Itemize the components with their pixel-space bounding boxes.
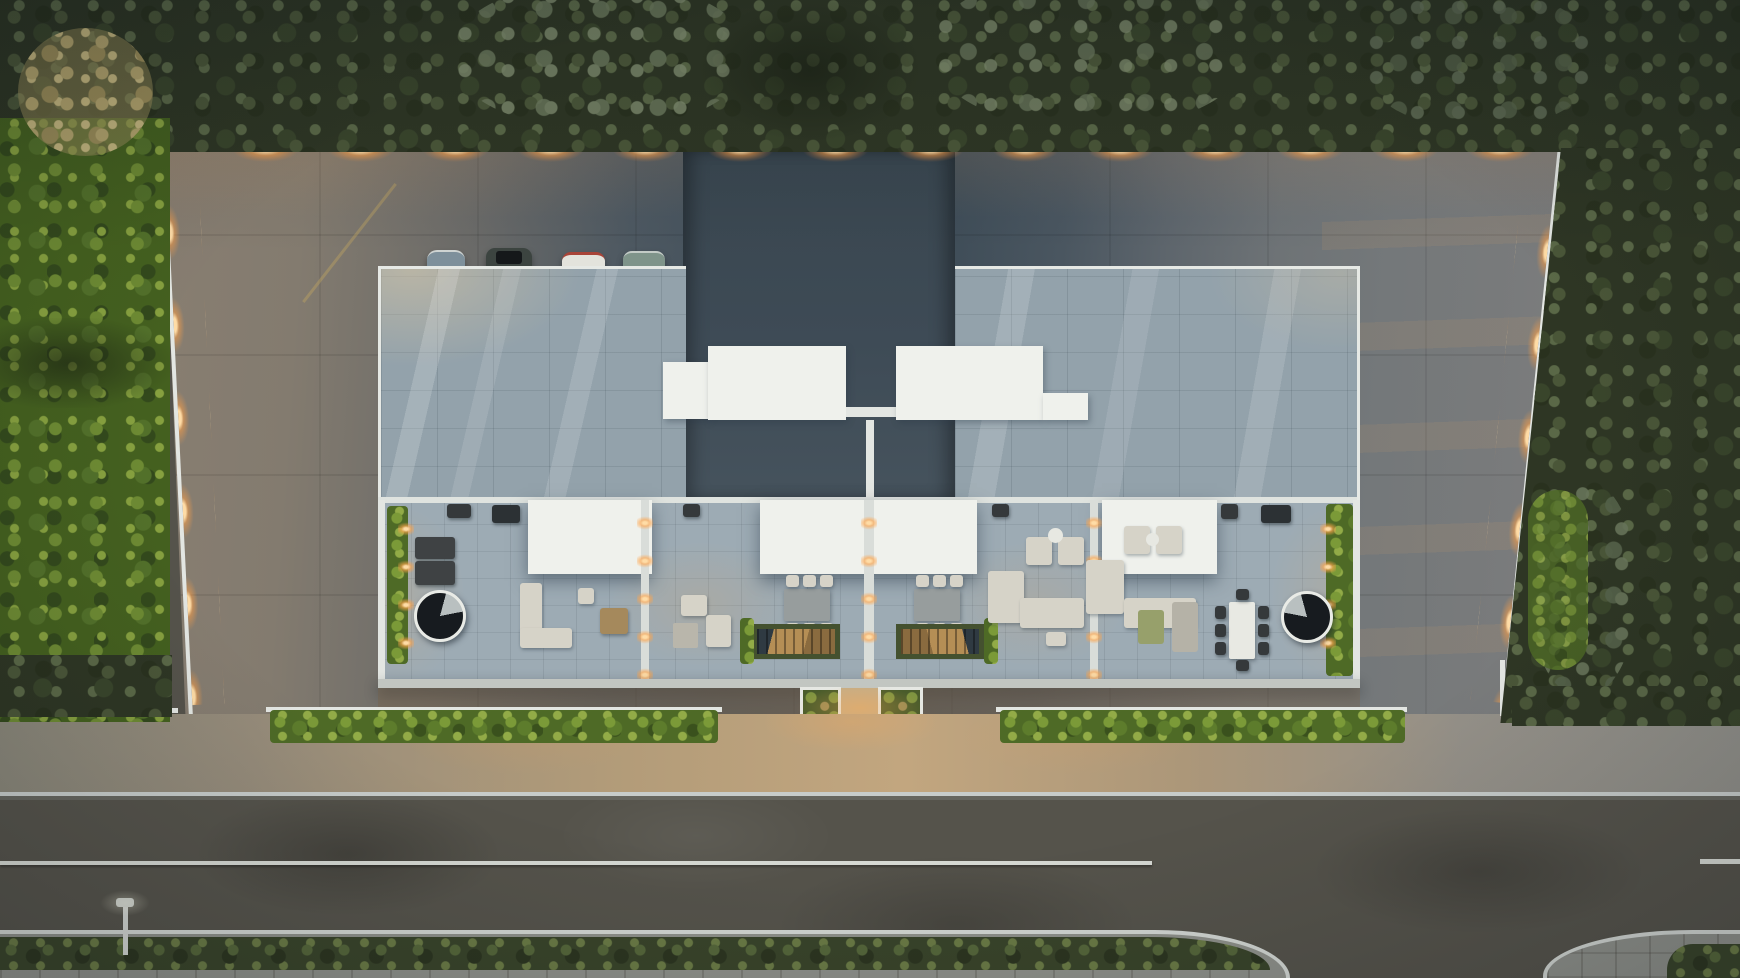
sidewalk [0, 714, 1740, 792]
sofa-unit4-vert [1086, 560, 1124, 614]
aerial-dusk-render [0, 0, 1740, 978]
moss-coffee-table-unit4 [1138, 610, 1164, 644]
dark-gap-left [0, 318, 170, 408]
roof-volume-connector [846, 407, 896, 417]
roof-plane-left [378, 266, 686, 505]
party-wall-center-lights [861, 504, 877, 684]
island-green-patch [1667, 944, 1740, 978]
recessed-core-yard [683, 148, 955, 502]
tree-band-top [0, 0, 1740, 152]
street-lamp-glow [100, 890, 150, 916]
pergola-canopy-unit1 [528, 500, 652, 574]
terrace-wall-left [378, 500, 385, 687]
round-table-unit3 [1048, 528, 1063, 543]
sofa-unit3-vert [988, 571, 1024, 623]
tan-tree-cluster [18, 28, 153, 156]
sofa-unit1-horiz [520, 628, 572, 648]
roof-volume-small-left [663, 362, 709, 419]
party-wall-1-lights [637, 504, 653, 684]
tree-band-left [0, 118, 170, 722]
bbq-grill-2 [492, 505, 520, 523]
sofa-unit2 [706, 615, 731, 647]
terrace-plants-unit2 [740, 618, 754, 664]
terrace-plants-unit3 [984, 618, 998, 664]
dining-chair [820, 575, 833, 587]
front-hedge-left [270, 710, 718, 743]
pouf-unit3 [1046, 632, 1066, 646]
sofa-unit3-horiz [1020, 598, 1084, 628]
lounge-chair-1a [415, 537, 455, 559]
dining-chair-dark [1215, 606, 1226, 619]
lane-line-main [0, 861, 1152, 865]
dining-chair [803, 575, 816, 587]
wall-lights-top [218, 150, 1548, 188]
roof-volume-right-step [1043, 393, 1088, 420]
planter-skylight-unit3-slats [901, 629, 979, 654]
hedge-lights-right [1320, 510, 1336, 672]
pale-tree-cluster-2 [930, 0, 1250, 130]
square-table-unit2 [673, 623, 698, 648]
median-island [0, 930, 1290, 978]
side-street-island [1543, 930, 1740, 978]
round-table-unit4 [1146, 533, 1159, 546]
deck-chair-unit3-b [1058, 537, 1084, 565]
dining-chair-dark [1258, 624, 1269, 637]
bench-unit4 [1172, 602, 1198, 652]
pale-tree-cluster-3 [1360, 0, 1600, 130]
dining-chair-dark [1258, 606, 1269, 619]
roof-volume-right [896, 346, 1043, 420]
bbq-grill-3 [1221, 504, 1238, 519]
veg-bottom-right [1512, 686, 1740, 726]
tree-overhang-inside-wall [1528, 490, 1588, 670]
planter-skylight-unit2-slats [757, 629, 835, 654]
dining-chair-dark [1236, 589, 1249, 600]
lounge-chair-1b [415, 561, 455, 585]
dining-chair [933, 575, 946, 587]
deck-chair-unit3-a [1026, 537, 1052, 565]
dining-chair [916, 575, 929, 587]
roof-volume-left [708, 346, 846, 420]
planter-lights-left [398, 510, 414, 662]
ac-unit-2 [683, 504, 700, 517]
dining-chair-dark [1258, 642, 1269, 655]
dining-chair-dark [1215, 642, 1226, 655]
veg-bottom-left [0, 655, 172, 717]
ac-unit-3 [992, 504, 1009, 517]
spiral-staircase-right [1281, 591, 1333, 643]
median-paver-strip [0, 970, 1286, 978]
dining-table-unit3 [914, 589, 960, 621]
dining-chair-dark [1215, 624, 1226, 637]
bbq-grill-1 [447, 504, 471, 518]
car-black-roofbox [496, 251, 522, 264]
dining-chair-dark [1236, 660, 1249, 671]
roof-left-sun-streaks [381, 269, 686, 505]
terrace-wall-right [1353, 500, 1360, 687]
armchair-unit2 [681, 595, 707, 616]
spiral-staircase-left [414, 590, 466, 642]
dark-tree-gap [700, 0, 920, 140]
median-green-strip [0, 937, 1270, 970]
lane-line-right-segment [1700, 859, 1740, 864]
dining-chair [950, 575, 963, 587]
front-hedge-right [1000, 710, 1405, 743]
deck-chair-unit4-b [1156, 526, 1182, 554]
dining-chair [786, 575, 799, 587]
bbq-grill-4 [1261, 505, 1291, 523]
party-wall-roof-seam [866, 420, 874, 502]
dining-table-unit4 [1229, 602, 1255, 659]
dining-table-unit2 [784, 589, 830, 621]
armchair-unit1 [578, 588, 594, 604]
wood-table-unit1 [600, 608, 628, 634]
sidewalk-warm-glows [0, 714, 1740, 792]
